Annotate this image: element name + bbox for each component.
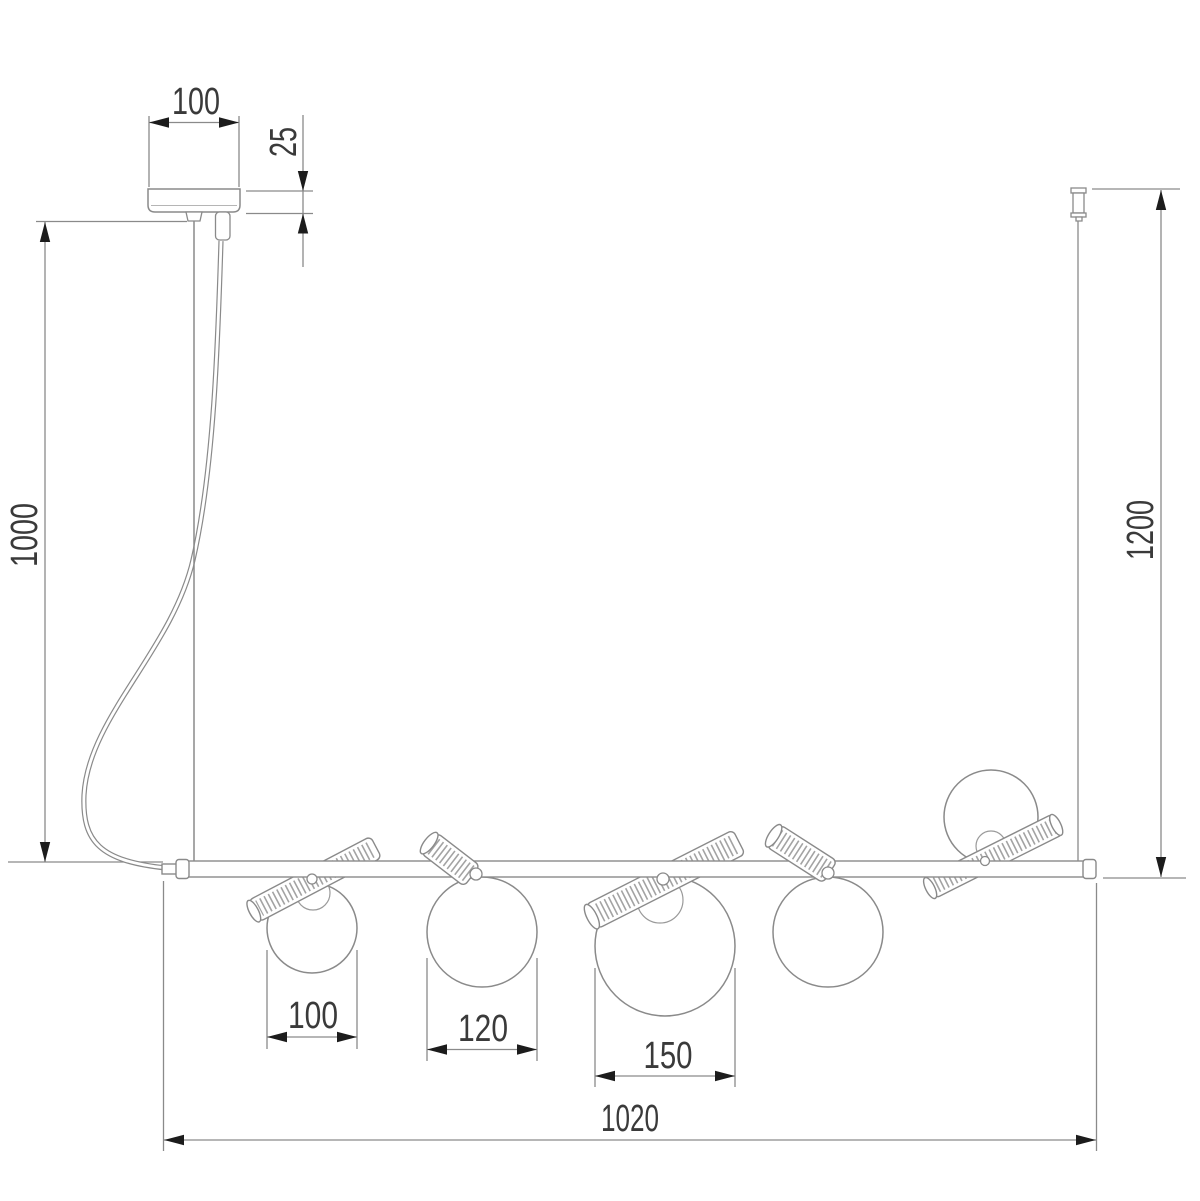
lamp-tube-2 — [417, 830, 480, 887]
tube-joint-1 — [307, 874, 317, 884]
tube-joint-2 — [470, 868, 482, 880]
power-cable-outline — [84, 241, 221, 868]
dim-label-left-drop: 1000 — [4, 503, 46, 567]
dim-label-globe-small: 100 — [288, 995, 338, 1037]
arrowhead — [1076, 1135, 1096, 1145]
technical-drawing: 100 25 1000 1200 100 120 150 1020 — [0, 0, 1200, 1201]
arrowhead — [164, 1135, 184, 1145]
canopy-wire-gland — [186, 212, 202, 221]
arrowhead — [1156, 857, 1166, 877]
arrowhead — [40, 222, 50, 242]
tube-joint-4 — [822, 867, 834, 879]
dimension-arrows — [40, 117, 1166, 1145]
arrowhead — [517, 1044, 537, 1054]
arrowhead — [595, 1071, 615, 1081]
power-cable — [84, 241, 221, 868]
dim-label-right-drop: 1200 — [1120, 500, 1162, 560]
fixture-bar — [162, 860, 1096, 879]
dimension-labels: 100 25 1000 1200 100 120 150 1020 — [4, 81, 1162, 1140]
arrowhead — [40, 842, 50, 862]
drawing-page: 100 25 1000 1200 100 120 150 1020 — [0, 0, 1200, 1201]
bar-end-cap-left — [176, 860, 189, 879]
arrowhead — [219, 117, 239, 127]
grip-body — [1073, 193, 1084, 213]
arrowhead — [298, 171, 308, 191]
globe-shade-4 — [773, 877, 883, 987]
grip-nipple — [1076, 217, 1082, 221]
arrowhead — [715, 1071, 735, 1081]
canopy-body — [148, 189, 240, 212]
dim-label-canopy-width: 100 — [172, 81, 220, 123]
dim-label-canopy-height: 25 — [263, 127, 305, 157]
canopy-cable-gland — [216, 212, 231, 240]
tube-joint-3 — [657, 873, 669, 885]
arrowhead — [298, 214, 308, 234]
bar-end-cap-right — [1083, 860, 1096, 879]
arrowhead — [427, 1044, 447, 1054]
dim-label-globe-medium: 120 — [458, 1008, 508, 1050]
globe-shade-2 — [427, 877, 537, 987]
grip-top-flange — [1071, 188, 1086, 193]
arrowhead — [267, 1032, 287, 1042]
dim-label-bar-length: 1020 — [601, 1098, 659, 1140]
ceiling-grip-right — [1071, 188, 1086, 221]
arrowhead — [337, 1032, 357, 1042]
dim-label-globe-large: 150 — [644, 1035, 693, 1077]
arrowhead — [1156, 190, 1166, 210]
power-cable-core — [84, 241, 221, 868]
dimension-lines — [8, 115, 1186, 1151]
tube-joint-5 — [981, 857, 990, 866]
arrowhead — [149, 117, 169, 127]
